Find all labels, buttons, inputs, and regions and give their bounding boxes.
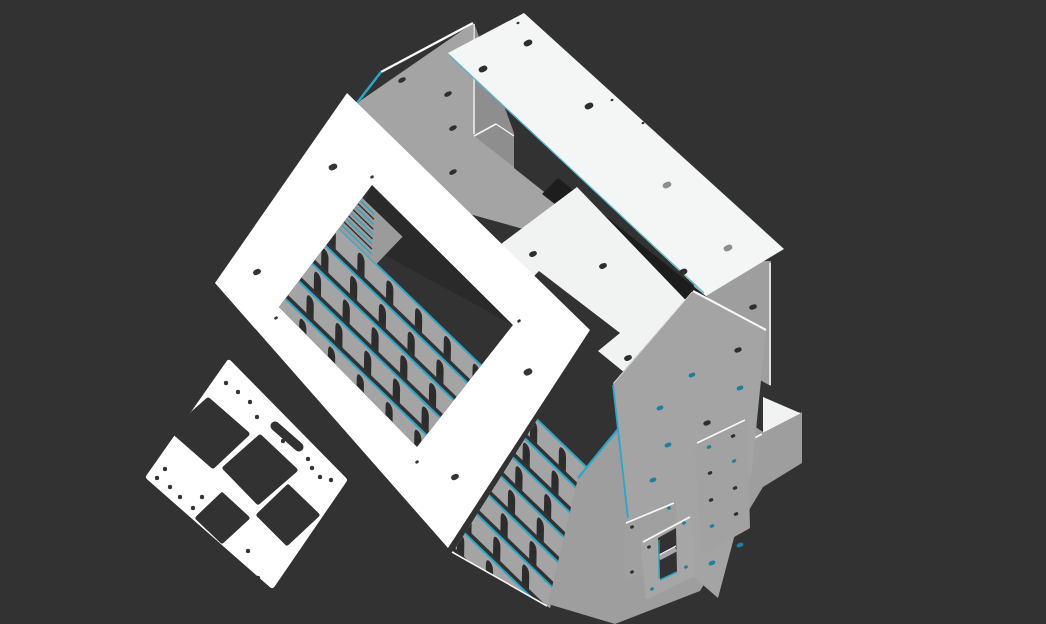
mount-plate-hole xyxy=(163,467,167,471)
mount-plate-hole xyxy=(246,549,250,553)
mount-plate-hole xyxy=(255,415,259,419)
mount-plate-hole xyxy=(155,476,159,480)
exploded-assembly-scene xyxy=(0,0,1046,624)
mount-plate-hole xyxy=(224,381,228,385)
mount-plate-hole xyxy=(191,506,195,510)
mount-plate-hole xyxy=(256,576,260,580)
mount-plate-hole xyxy=(178,495,182,499)
mount-plate-hole xyxy=(318,475,322,479)
mount-plate-hole xyxy=(329,478,333,482)
mount-plate-hole xyxy=(281,439,285,443)
mount-plate-hole xyxy=(310,466,314,470)
mount-plate-hole xyxy=(200,495,204,499)
mount-plate-hole xyxy=(210,505,214,509)
side-panel-hole xyxy=(736,542,744,549)
mount-plate-hole xyxy=(306,457,310,461)
cad-3d-viewport[interactable] xyxy=(0,0,1046,624)
mount-plate-hole xyxy=(248,400,252,404)
mount-plate-hole xyxy=(168,485,172,489)
mount-plate-hole xyxy=(236,390,240,394)
bracket-plate-c[interactable] xyxy=(697,420,748,552)
